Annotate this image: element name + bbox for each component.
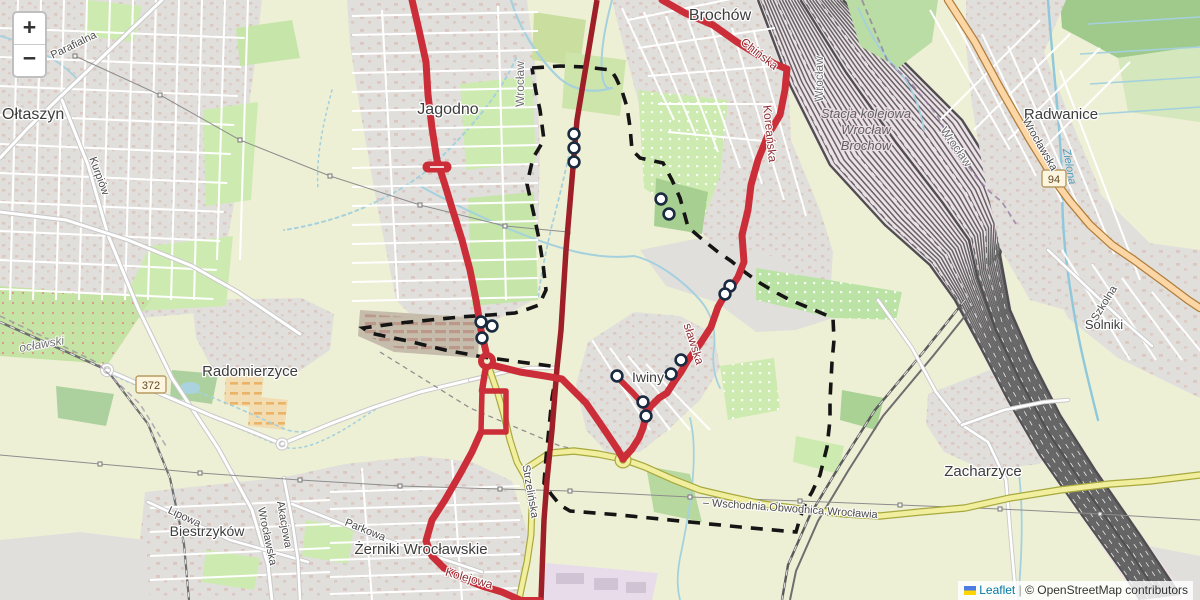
svg-text:Stacja kolejowa: Stacja kolejowa (821, 106, 911, 121)
svg-text:Jagodno: Jagodno (417, 101, 478, 118)
svg-text:Solniki: Solniki (1085, 317, 1123, 332)
svg-text:Radwanice: Radwanice (1024, 106, 1098, 123)
svg-text:Wrocław: Wrocław (812, 56, 826, 102)
svg-text:Radomierzyce: Radomierzyce (202, 363, 298, 380)
svg-text:Wrocław: Wrocław (513, 61, 527, 107)
svg-text:Wrocław: Wrocław (841, 122, 892, 137)
svg-text:Biestrzyków: Biestrzyków (170, 523, 246, 539)
svg-text:Zacharzyce: Zacharzyce (944, 463, 1022, 480)
svg-text:Iwiny: Iwiny (632, 369, 664, 385)
svg-text:94: 94 (1048, 174, 1060, 186)
svg-text:372: 372 (142, 380, 160, 392)
svg-text:Brochów: Brochów (841, 138, 893, 153)
svg-text:Żerniki Wrocławskie: Żerniki Wrocławskie (354, 540, 487, 558)
svg-text:Brochów: Brochów (689, 7, 752, 24)
svg-text:Ołtaszyn: Ołtaszyn (2, 106, 64, 123)
